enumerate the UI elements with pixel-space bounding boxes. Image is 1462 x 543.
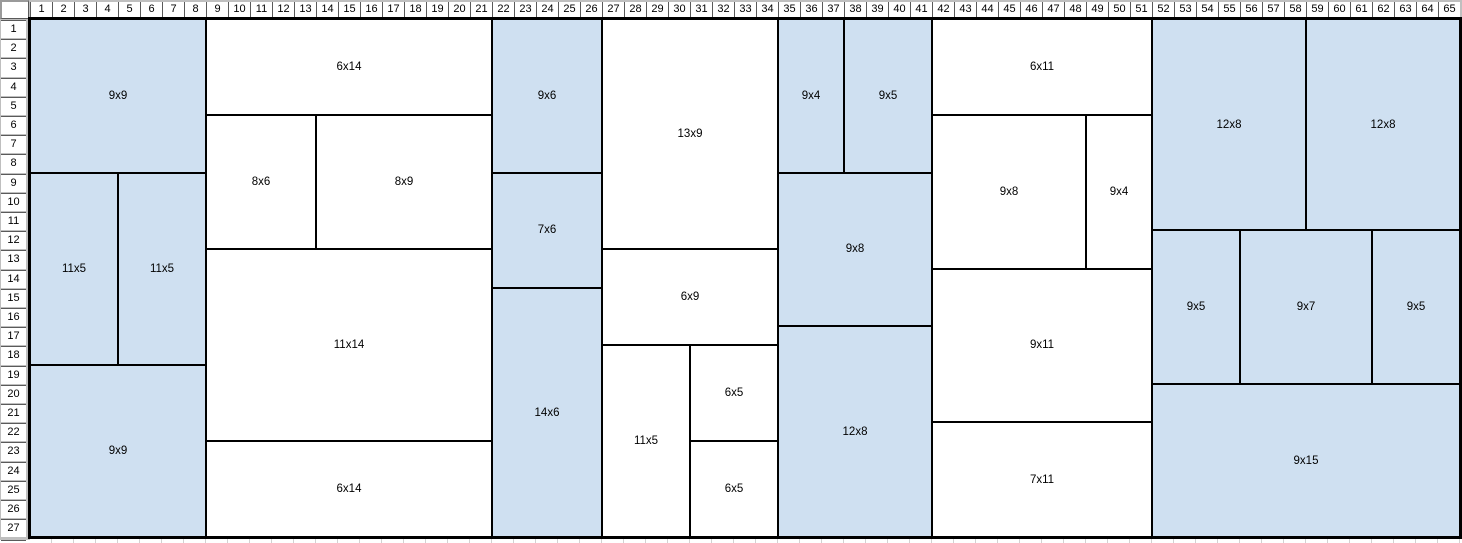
column-header[interactable]: 24: [536, 2, 558, 17]
rect-label: 11x5: [634, 435, 658, 447]
row-header[interactable]: 25: [1, 481, 26, 499]
rect-label: 7x6: [538, 224, 557, 236]
row-header[interactable]: 11: [1, 212, 26, 230]
column-header[interactable]: 21: [470, 2, 492, 17]
packed-rect[interactable]: 9x4: [1086, 115, 1152, 269]
packed-rect[interactable]: 12x8: [1306, 19, 1460, 230]
column-header[interactable]: 27: [602, 2, 624, 17]
packed-rect[interactable]: 6x14: [206, 19, 492, 115]
rect-label: 9x9: [109, 90, 128, 102]
column-header[interactable]: 56: [1240, 2, 1262, 17]
column-header[interactable]: 28: [624, 2, 646, 17]
packed-rect[interactable]: 14x6: [492, 288, 602, 538]
rect-label: 9x9: [109, 445, 128, 457]
column-header[interactable]: 53: [1174, 2, 1196, 17]
packed-rect[interactable]: 9x8: [932, 115, 1086, 269]
row-header[interactable]: 24: [1, 462, 26, 480]
rect-label: 14x6: [535, 407, 560, 419]
column-header[interactable]: 33: [734, 2, 756, 17]
row-header[interactable]: 18: [1, 346, 26, 364]
column-header[interactable]: 4: [96, 2, 118, 17]
column-header[interactable]: 47: [1042, 2, 1064, 17]
column-header[interactable]: 17: [382, 2, 404, 17]
column-header[interactable]: 8: [184, 2, 206, 17]
column-header[interactable]: 3: [74, 2, 96, 17]
column-header[interactable]: 54: [1196, 2, 1218, 17]
column-header[interactable]: 23: [514, 2, 536, 17]
row-header[interactable]: 3: [1, 58, 26, 76]
packed-rect[interactable]: 6x11: [932, 19, 1152, 115]
column-header[interactable]: 7: [162, 2, 184, 17]
packed-rect[interactable]: 11x5: [30, 173, 118, 365]
rect-label: 8x9: [395, 176, 414, 188]
row-header[interactable]: 5: [1, 97, 26, 115]
rect-label: 12x8: [843, 426, 868, 438]
packed-rect[interactable]: 11x5: [602, 345, 690, 537]
rect-label: 8x6: [252, 176, 271, 188]
row-header[interactable]: 8: [1, 154, 26, 172]
column-header[interactable]: 48: [1064, 2, 1086, 17]
row-header[interactable]: 9: [1, 174, 26, 192]
packed-rect[interactable]: 9x5: [1152, 230, 1240, 384]
column-header[interactable]: 20: [448, 2, 470, 17]
select-all-corner[interactable]: [0, 0, 29, 19]
packing-canvas[interactable]: 9x911x511x59x96x148x68x911x146x149x67x61…: [28, 17, 1462, 539]
packed-rect[interactable]: 9x15: [1152, 384, 1460, 538]
rect-label: 11x5: [62, 263, 86, 275]
column-header[interactable]: 30: [668, 2, 690, 17]
row-header[interactable]: 17: [1, 327, 26, 345]
column-header[interactable]: 22: [492, 2, 514, 17]
packed-rect[interactable]: 6x5: [690, 345, 778, 441]
row-header[interactable]: 22: [1, 423, 26, 441]
column-header[interactable]: 15: [338, 2, 360, 17]
column-header[interactable]: 45: [998, 2, 1020, 17]
rect-label: 9x7: [1297, 301, 1316, 313]
column-header[interactable]: 19: [426, 2, 448, 17]
partial-row-gridlines: [30, 539, 1460, 543]
rect-label: 9x6: [538, 90, 557, 102]
column-header[interactable]: 35: [778, 2, 800, 17]
column-header[interactable]: 63: [1394, 2, 1416, 17]
column-header[interactable]: 11: [250, 2, 272, 17]
column-header[interactable]: 46: [1020, 2, 1042, 17]
rect-label: 9x8: [1000, 186, 1019, 198]
row-header[interactable]: 12: [1, 231, 26, 249]
rect-label: 9x8: [846, 243, 865, 255]
packed-rect[interactable]: 11x14: [206, 249, 492, 441]
rect-label: 6x9: [681, 291, 700, 303]
row-header[interactable]: 27: [1, 519, 26, 537]
row-header[interactable]: 20: [1, 385, 26, 403]
packed-rect[interactable]: 9x6: [492, 19, 602, 173]
row-header[interactable]: 4: [1, 78, 26, 96]
row-header[interactable]: 16: [1, 308, 26, 326]
rect-label: 13x9: [678, 128, 703, 140]
column-header[interactable]: 5: [118, 2, 140, 17]
row-header[interactable]: 6: [1, 116, 26, 134]
column-header[interactable]: 2: [52, 2, 74, 17]
column-header[interactable]: 57: [1262, 2, 1284, 17]
column-header[interactable]: 9: [206, 2, 228, 17]
row-header[interactable]: 2: [1, 39, 26, 57]
column-header[interactable]: 55: [1218, 2, 1240, 17]
row-header[interactable]: 19: [1, 366, 26, 384]
packed-rect[interactable]: 9x5: [844, 19, 932, 173]
column-header[interactable]: 42: [932, 2, 954, 17]
column-header[interactable]: 50: [1108, 2, 1130, 17]
column-header[interactable]: 52: [1152, 2, 1174, 17]
rect-label: 7x11: [1030, 474, 1054, 486]
packed-rect[interactable]: 9x11: [932, 269, 1152, 423]
column-header[interactable]: 10: [228, 2, 250, 17]
packed-rect[interactable]: 7x6: [492, 173, 602, 288]
rect-label: 9x11: [1030, 339, 1054, 351]
row-header[interactable]: 21: [1, 404, 26, 422]
rect-label: 6x14: [337, 61, 362, 73]
rect-label: 9x4: [1110, 186, 1129, 198]
column-header[interactable]: 51: [1130, 2, 1152, 17]
rect-label: 12x8: [1371, 119, 1396, 131]
column-header[interactable]: 62: [1372, 2, 1394, 17]
column-header[interactable]: 16: [360, 2, 382, 17]
column-header[interactable]: 14: [316, 2, 338, 17]
column-header[interactable]: 49: [1086, 2, 1108, 17]
row-header[interactable]: 10: [1, 193, 26, 211]
row-header[interactable]: 7: [1, 135, 26, 153]
packed-rect[interactable]: 6x5: [690, 441, 778, 537]
rect-label: 9x5: [1187, 301, 1206, 313]
rect-label: 6x14: [337, 483, 362, 495]
packed-rect[interactable]: 6x14: [206, 441, 492, 537]
column-header[interactable]: 61: [1350, 2, 1372, 17]
rect-label: 6x5: [725, 483, 744, 495]
packed-rect[interactable]: 9x8: [778, 173, 932, 327]
rect-label: 11x5: [150, 263, 174, 275]
column-header[interactable]: 6: [140, 2, 162, 17]
rect-label: 9x15: [1294, 455, 1319, 467]
rect-label: 9x5: [1407, 301, 1426, 313]
packed-rect[interactable]: 9x4: [778, 19, 844, 173]
column-header[interactable]: 34: [756, 2, 778, 17]
packed-rect[interactable]: 7x11: [932, 422, 1152, 537]
column-header[interactable]: 32: [712, 2, 734, 17]
packed-rect[interactable]: 8x6: [206, 115, 316, 249]
row-header[interactable]: 23: [1, 442, 26, 460]
rect-label: 9x5: [879, 90, 898, 102]
rect-label: 6x11: [1030, 61, 1054, 73]
column-header[interactable]: 38: [844, 2, 866, 17]
packed-rect[interactable]: 9x5: [1372, 230, 1460, 384]
column-header[interactable]: 64: [1416, 2, 1438, 17]
packed-rect[interactable]: 13x9: [602, 19, 778, 249]
column-header[interactable]: 58: [1284, 2, 1306, 17]
packed-rect[interactable]: 8x9: [316, 115, 492, 249]
column-header[interactable]: 41: [910, 2, 932, 17]
column-header[interactable]: 1: [30, 2, 52, 17]
rect-label: 9x4: [802, 90, 821, 102]
packed-rect[interactable]: 9x9: [30, 365, 206, 538]
column-header[interactable]: 26: [580, 2, 602, 17]
column-header[interactable]: 44: [976, 2, 998, 17]
packed-rect[interactable]: 12x8: [1152, 19, 1306, 230]
column-header[interactable]: 31: [690, 2, 712, 17]
column-header[interactable]: 43: [954, 2, 976, 17]
row-header[interactable]: 14: [1, 270, 26, 288]
column-header[interactable]: 13: [294, 2, 316, 17]
column-header[interactable]: 40: [888, 2, 910, 17]
column-header[interactable]: 18: [404, 2, 426, 17]
packed-rect[interactable]: 9x7: [1240, 230, 1372, 384]
row-header[interactable]: 15: [1, 289, 26, 307]
column-header[interactable]: 37: [822, 2, 844, 17]
packed-rect[interactable]: 9x9: [30, 19, 206, 173]
spreadsheet: 1234567891011121314151617181920212223242…: [0, 0, 1462, 543]
column-header[interactable]: 39: [866, 2, 888, 17]
rect-label: 11x14: [334, 339, 364, 351]
column-header[interactable]: 59: [1306, 2, 1328, 17]
column-header[interactable]: 25: [558, 2, 580, 17]
row-header[interactable]: 13: [1, 250, 26, 268]
row-header[interactable]: 26: [1, 500, 26, 518]
rect-label: 6x5: [725, 387, 744, 399]
column-header[interactable]: 65: [1438, 2, 1460, 17]
rect-label: 12x8: [1217, 119, 1242, 131]
row-header[interactable]: 1: [1, 20, 26, 38]
column-header[interactable]: 29: [646, 2, 668, 17]
packed-rect[interactable]: 6x9: [602, 249, 778, 345]
column-header[interactable]: 36: [800, 2, 822, 17]
column-header[interactable]: 12: [272, 2, 294, 17]
packed-rect[interactable]: 12x8: [778, 326, 932, 537]
row-headers: 1234567891011121314151617181920212223242…: [0, 19, 30, 540]
packed-rect[interactable]: 11x5: [118, 173, 206, 365]
column-header[interactable]: 60: [1328, 2, 1350, 17]
